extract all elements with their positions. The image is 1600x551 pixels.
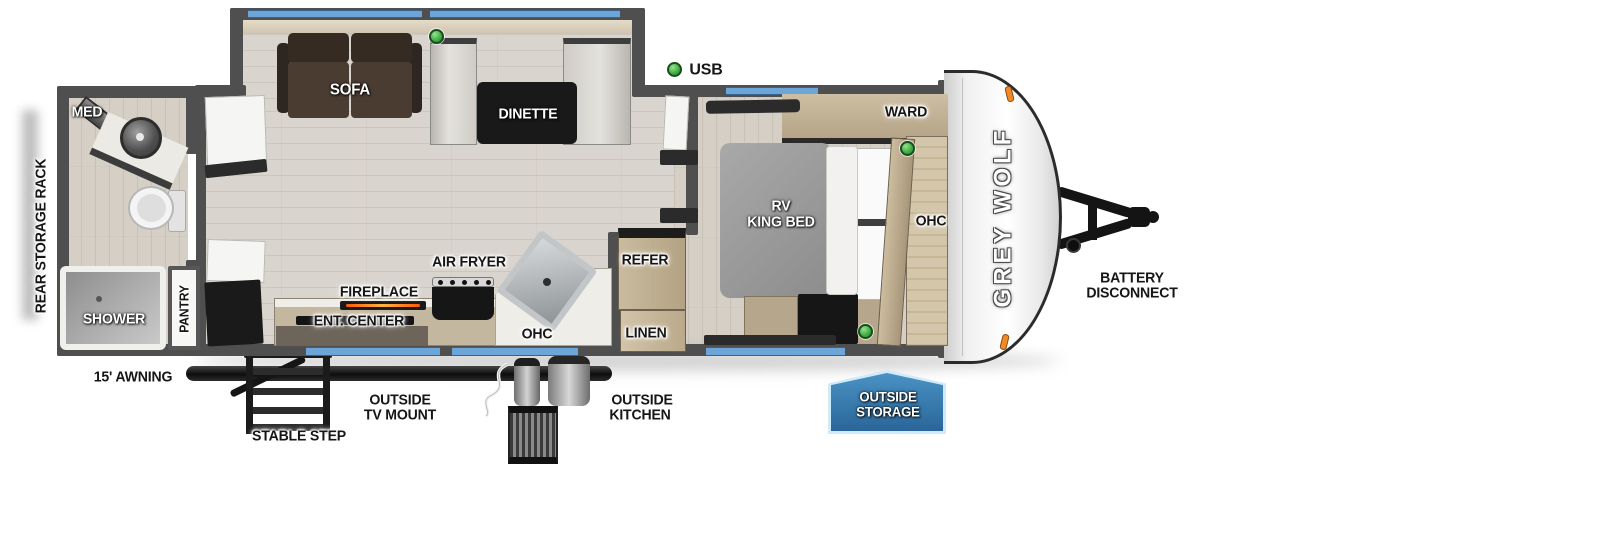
bedroom-ohc-label: OHC: [916, 214, 947, 229]
brand-logo: GREY WOLF: [996, 127, 1011, 308]
bedroom-door-panel: [663, 95, 690, 150]
outside-kitchen-sink: [548, 356, 590, 406]
usb-legend-label: USB: [689, 63, 722, 78]
dinette-label: DINETTE: [498, 107, 557, 122]
usb-indicator-icon-legend: [667, 62, 682, 77]
range-body: [432, 287, 494, 320]
bedroom-shelf-lower: [660, 208, 698, 223]
headboard-shelf: [706, 99, 800, 114]
kitchen-ohc-label: OHC: [522, 327, 553, 342]
sofa-label: SOFA: [330, 83, 370, 98]
kitchen-sink-drain: [543, 278, 551, 286]
slideout-window-right: [430, 10, 620, 18]
toilet-seat: [137, 194, 166, 222]
bottom-window-kitchen: [452, 347, 578, 356]
dinette-bench-left: [430, 38, 477, 145]
outside-storage-label-line1: OUTSIDE: [859, 390, 916, 405]
battery-disconnect-label-line2: DISCONNECT: [1086, 286, 1177, 301]
bottom-window-bedroom: [706, 347, 845, 356]
shower-pan: [60, 266, 166, 350]
bedroom-shelf-upper: [660, 150, 698, 165]
outside-tv-mount-label-line2: TV MOUNT: [364, 408, 436, 423]
usb-indicator-icon-wardrobe: [900, 141, 915, 156]
hitch-jack-wheel: [1066, 238, 1081, 253]
refer-cabinet: [618, 228, 686, 310]
refer-label: REFER: [622, 253, 669, 268]
floorplan-diagram: GREY WOLF OUTSIDE STORAGE USB MED SHOWER…: [0, 0, 1600, 551]
bottom-window-living: [306, 347, 440, 356]
slideout-right-wall: [632, 8, 645, 97]
range-knobs: [438, 280, 443, 285]
slideout-left-wall: [230, 8, 243, 97]
awning-label: 15' AWNING: [94, 370, 173, 385]
shower-drain: [96, 296, 102, 302]
outside-tv-mount-label-line1: OUTSIDE: [369, 393, 430, 408]
air-fryer-label: AIR FRYER: [432, 255, 506, 270]
usb-indicator-icon-bedfoot: [858, 324, 873, 339]
usb-indicator-icon-slideout: [429, 29, 444, 44]
outside-kitchen-label-line2: KITCHEN: [609, 408, 670, 423]
rear-cabinet-upper: [205, 95, 267, 169]
bathroom-top-wall: [57, 86, 205, 98]
outside-griddle: [508, 406, 558, 464]
pantry-label: PANTRY: [177, 285, 192, 333]
sink-drain: [136, 133, 144, 141]
battery-disconnect-label-line1: BATTERY: [1100, 271, 1164, 286]
rear-storage-rack-label: REAR STORAGE RACK: [34, 159, 49, 314]
front-cap-seam: [962, 78, 963, 356]
med-label: MED: [72, 105, 103, 120]
entry-door-open: [204, 280, 263, 347]
sofa: [277, 33, 422, 118]
hitch-ball: [1147, 211, 1159, 223]
bedroom-window-sill: [704, 335, 836, 345]
outside-storage-label-line2: STORAGE: [856, 405, 920, 420]
entry-steps: [244, 350, 332, 434]
bed-pillow-strip: [826, 146, 858, 295]
ent-center-label: ENT. CENTER: [314, 314, 404, 329]
outside-kitchen-burner: [514, 358, 540, 406]
outside-kitchen-label-line1: OUTSIDE: [611, 393, 672, 408]
linen-label: LINEN: [625, 326, 666, 341]
shower-label: SHOWER: [83, 312, 145, 327]
hitch-crossbar: [1088, 198, 1097, 240]
slideout-window-left: [248, 10, 422, 18]
rear-cabinet-lower: [206, 239, 265, 283]
king-bed-label-line1: RV: [772, 199, 791, 214]
ward-label: WARD: [885, 105, 927, 120]
fireplace-label: FIREPLACE: [340, 285, 418, 300]
stable-step-label: STABLE STEP: [252, 429, 346, 444]
king-bed-label-line2: KING BED: [747, 215, 814, 230]
fireplace-insert: [340, 301, 426, 310]
